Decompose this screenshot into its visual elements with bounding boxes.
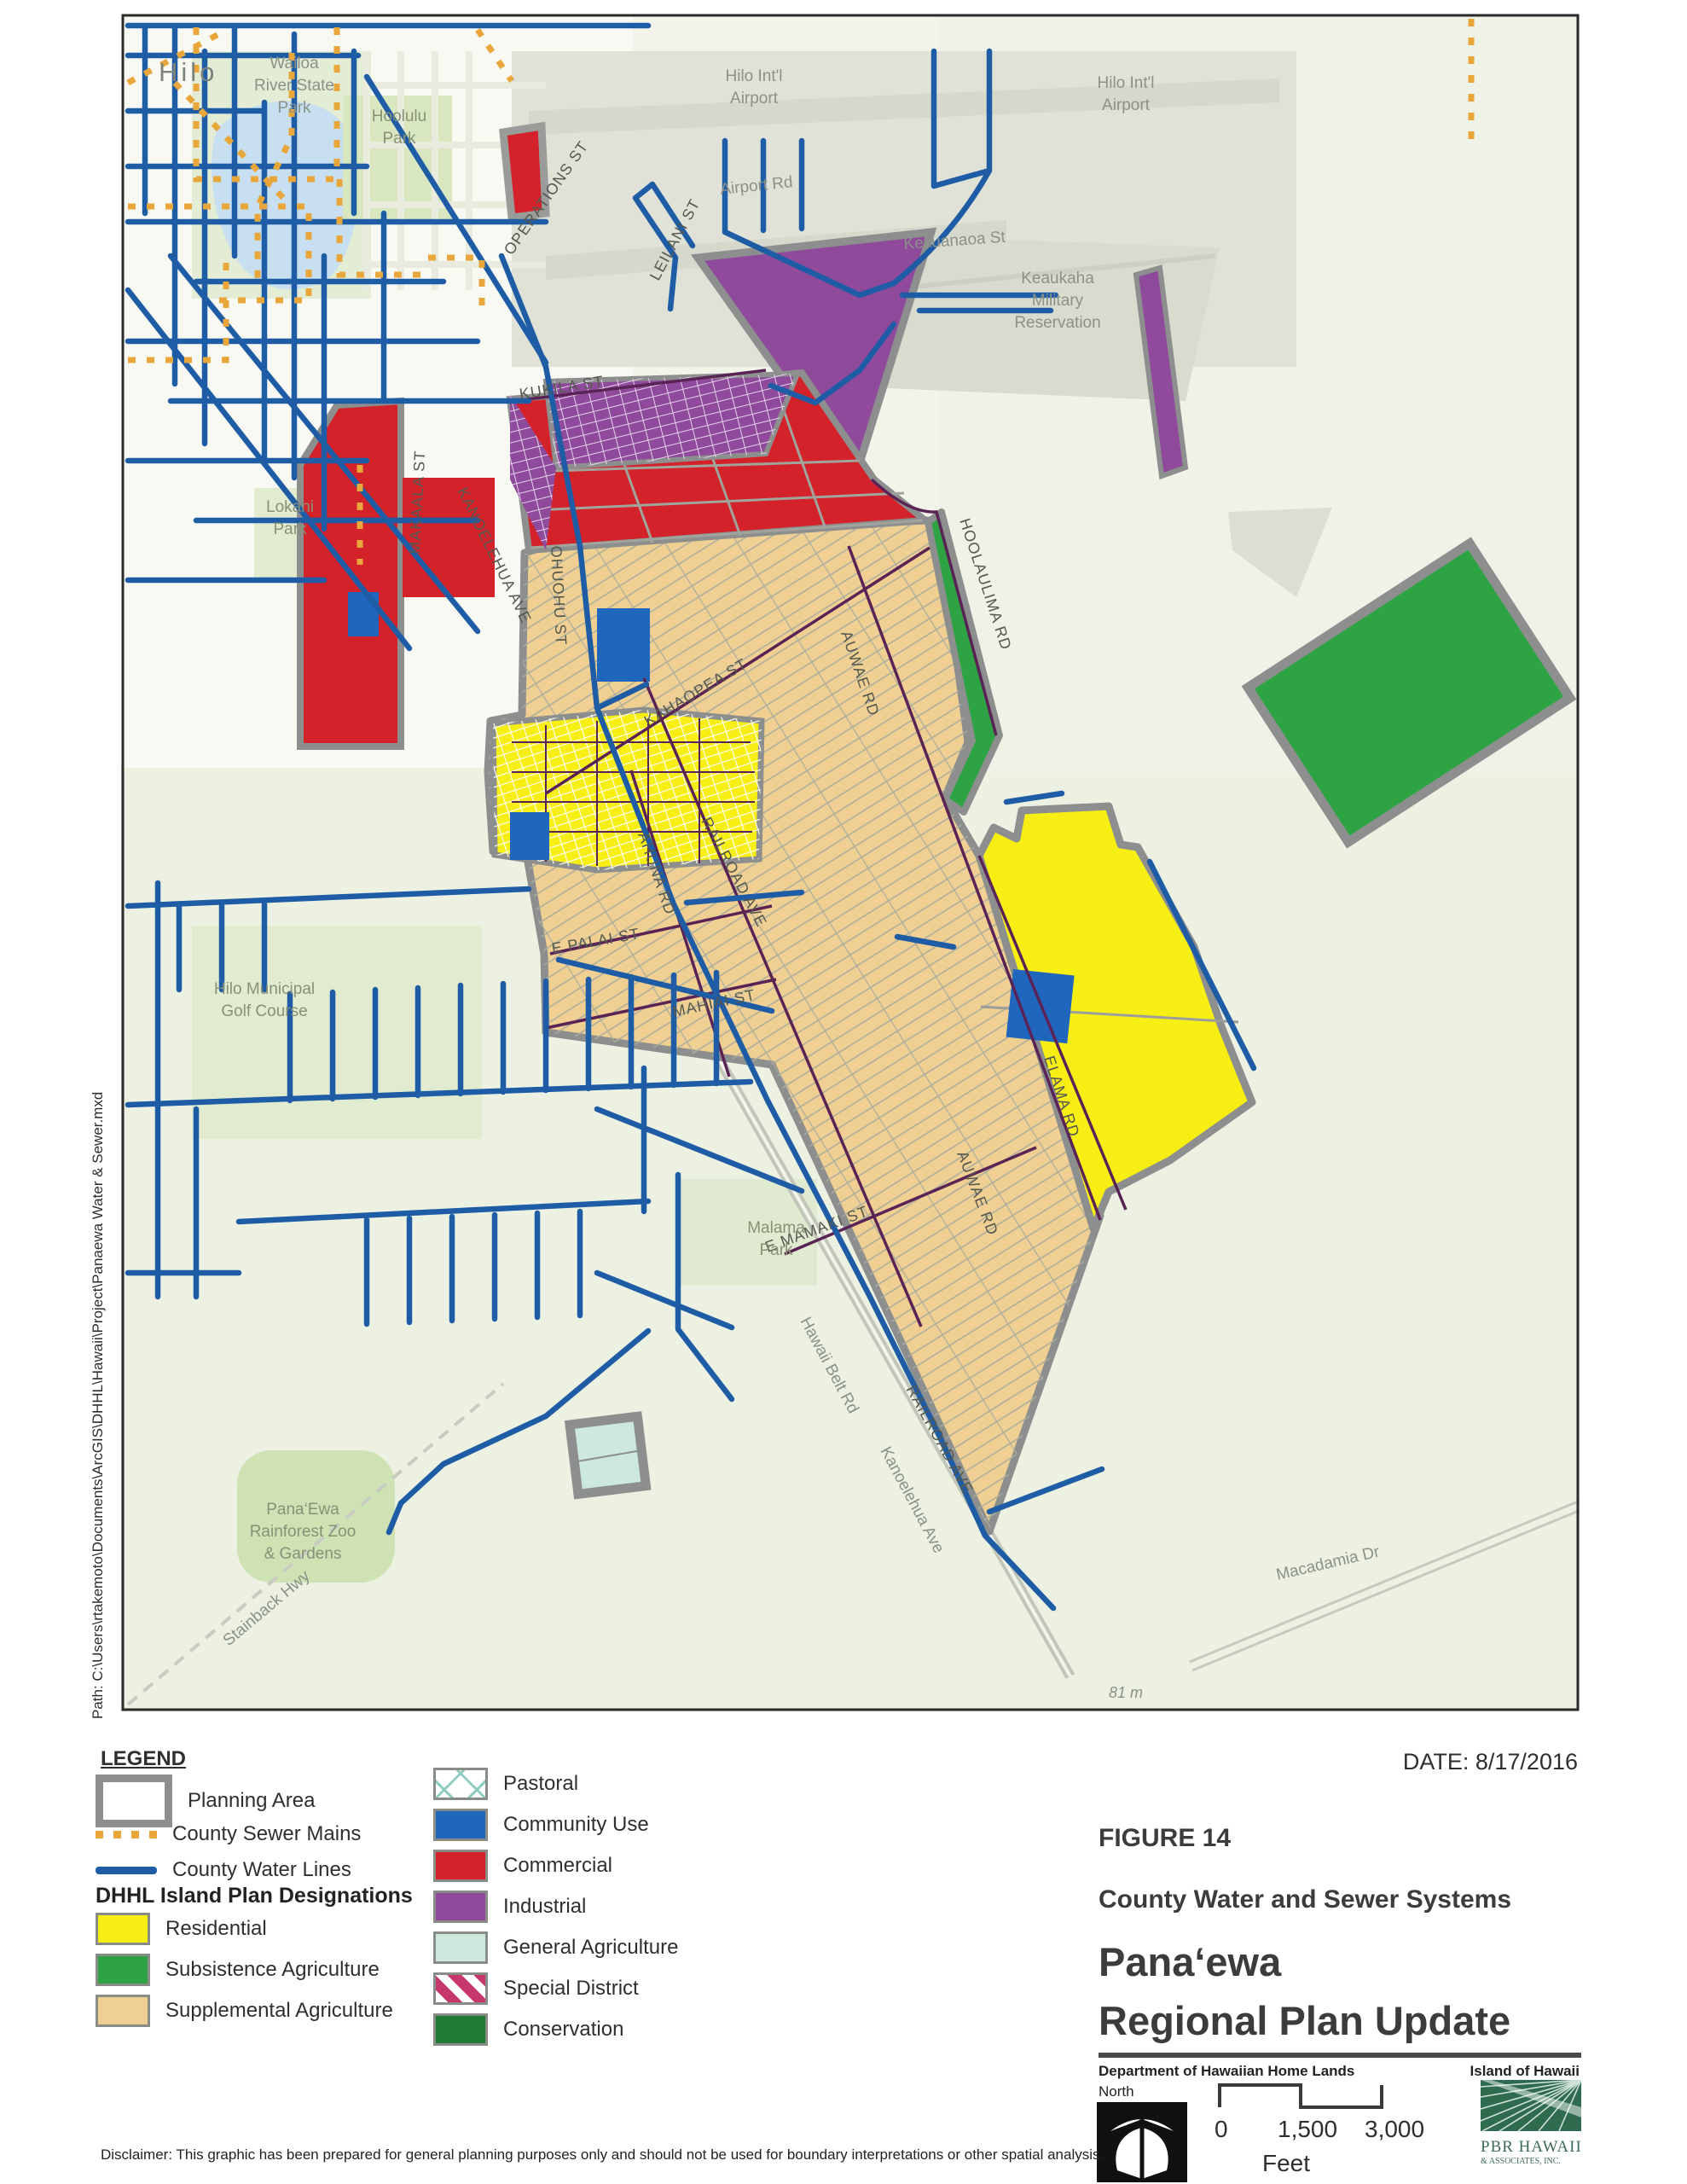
pbr-logo-name: PBR HAWAII [1481,2138,1583,2157]
pbr-logo-image [1481,2080,1581,2131]
north-arrow [1097,2102,1187,2184]
airport-label: Airport [730,90,779,107]
airport-label: Airport [1102,96,1151,114]
pbr-hawaii-logo: PBR HAWAII & ASSOCIATES, INC. [1481,2080,1583,2166]
map-canvas: Hilo Wailoa River State Park Hoolulu Par… [121,14,1580,1711]
legend-item-subsistence: Subsistence Agriculture [96,1954,380,1986]
industrial-swatch [433,1891,488,1923]
legend-label: Planning Area [188,1789,315,1813]
scale-tick: 3,000 [1365,2116,1424,2143]
legend-item-conservation: Conservation [433,2013,623,2046]
legend-label: County Water Lines [172,1858,351,1882]
golf-course-area [192,926,482,1139]
legend-item-industrial: Industrial [433,1891,586,1923]
pastoral-swatch [433,1768,488,1800]
legend-item-supplemental: Supplemental Agriculture [96,1995,393,2027]
airport-label: Hilo Int'l [1098,74,1155,92]
figure-title-line2: Regional Plan Update [1099,1997,1581,2058]
legend-item-pastoral: Pastoral [433,1768,578,1800]
park-label: Pana‘Ewa [266,1501,339,1519]
legend-designations-header: DHHL Island Plan Designations [96,1884,413,1908]
elevation-label: 81 m [1109,1684,1143,1701]
north-label: North [1099,2083,1134,2100]
legend-title: LEGEND [101,1747,186,1771]
community-use-block [597,608,650,682]
scale-tick: 1,500 [1278,2116,1337,2143]
conservation-swatch [433,2013,488,2046]
commercial-swatch [433,1850,488,1882]
legend-label: Residential [165,1917,267,1941]
figure-title-line1: Pana‘ewa [1099,1938,1581,1985]
planning-area-swatch [96,1774,172,1827]
legend-item-general-agriculture: General Agriculture [433,1931,678,1964]
legend-label: County Sewer Mains [172,1822,361,1846]
park-label: Lokahi [266,498,314,516]
park-label: Park [759,1241,793,1259]
park-label: & Gardens [264,1545,342,1563]
park-label: Hilo Municipal [214,980,315,998]
place-label: Wailoa [270,55,319,73]
airport-label: Hilo Int'l [726,67,783,85]
figure-subtitle: County Water and Sewer Systems [1099,1885,1581,1914]
place-label: River State [254,77,334,95]
water-line-swatch [96,1867,157,1874]
park-label: Malama [747,1219,805,1237]
park-label: Hoolulu [372,107,426,125]
legend-label: Conservation [503,2018,623,2042]
park-label: Golf Course [221,1002,307,1020]
sewer-line-swatch [96,1831,157,1838]
date-label: DATE: 8/17/2016 [1330,1749,1578,1775]
legend-label: Supplemental Agriculture [165,1999,393,2023]
file-path-label: Path: C:\Users\rtakemoto\Documents\ArcGI… [90,619,107,1719]
legend-label: Special District [503,1977,639,2001]
community-use-block [510,812,549,860]
figure-number: FIGURE 14 [1099,1824,1581,1853]
legend-label: Community Use [503,1813,649,1837]
scale-bar [1211,2073,1433,2117]
legend-item-special-district: Special District [433,1972,639,2005]
map-frame: Hilo Wailoa River State Park Hoolulu Par… [121,14,1580,1711]
legend-label: Commercial [503,1854,612,1878]
general-agriculture-swatch [433,1931,488,1964]
legend-item-water-lines: County Water Lines [96,1858,351,1882]
pbr-logo-subname: & ASSOCIATES, INC. [1481,2157,1583,2166]
disclaimer-text: Disclaimer: This graphic has been prepar… [101,2146,1295,2164]
legend-item-commercial: Commercial [433,1850,612,1882]
community-use-swatch [433,1809,488,1841]
special-district-swatch [433,1972,488,2005]
scale-tick: 0 [1215,2116,1228,2143]
place-label: Hilo [159,57,217,87]
place-label: Military [1032,292,1084,310]
subsistence-swatch [96,1954,150,1986]
general-agriculture-block [570,1416,646,1494]
legend-label: Industrial [503,1895,586,1919]
legend-item-planning-area: Planning Area [96,1774,315,1827]
legend-item-residential: Residential [96,1913,267,1945]
community-use-block [348,592,379,636]
supplemental-swatch [96,1995,150,2027]
park-label: Park [273,520,307,538]
scanned-map-page: Path: C:\Users\rtakemoto\Documents\ArcGI… [0,0,1687,2184]
place-label: Reservation [1014,314,1100,332]
place-label: Keaukaha [1021,270,1094,288]
legend-label: General Agriculture [503,1936,678,1960]
place-label: Park [277,99,311,117]
park-label: Park [382,130,416,148]
legend-label: Pastoral [503,1772,578,1796]
park-label: Rainforest Zoo [250,1523,357,1541]
legend-item-sewer-mains: County Sewer Mains [96,1822,361,1846]
legend-item-community-use: Community Use [433,1809,649,1841]
residential-swatch [96,1913,150,1945]
island-label: Island of Hawaii [1450,2063,1580,2080]
legend-label: Subsistence Agriculture [165,1958,380,1982]
figure-title-block: FIGURE 14 County Water and Sewer Systems… [1099,1824,1581,2058]
